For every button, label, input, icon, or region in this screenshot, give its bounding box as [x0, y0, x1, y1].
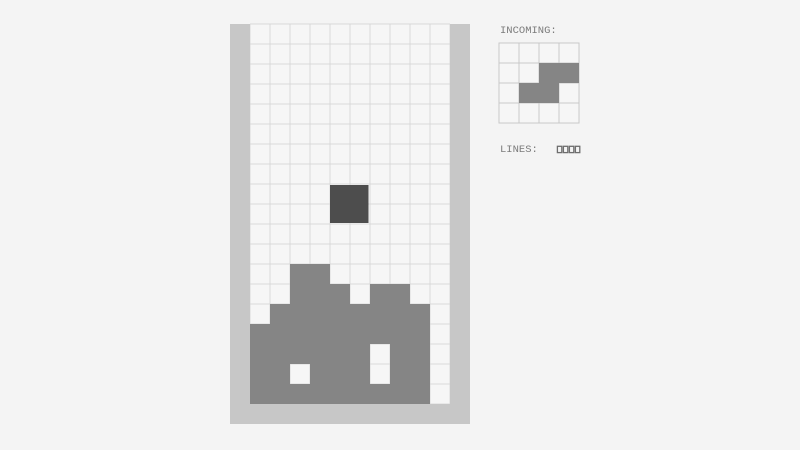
svg-text:INCOMING:: INCOMING:	[500, 25, 557, 37]
svg-text:LINES:: LINES:	[500, 144, 538, 156]
